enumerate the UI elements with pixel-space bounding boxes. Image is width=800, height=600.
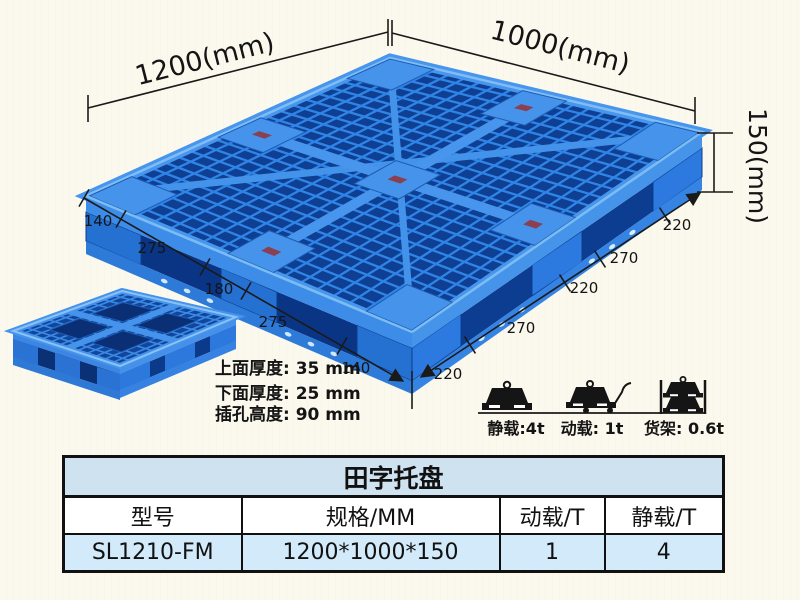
spec-table-title: 田字托盘	[64, 457, 724, 497]
dim-width-label: 1000(mm)	[487, 15, 633, 80]
cell-spec: 1200*1000*150	[242, 534, 500, 572]
rack-load-label: 货架: 0.6t	[644, 419, 724, 438]
rack-load-icon	[661, 377, 705, 414]
static-load-icon	[482, 382, 532, 410]
small-pallet-illustration	[13, 291, 236, 400]
header-spec: 规格/MM	[242, 497, 500, 535]
note-slot-height: 插孔高度: 90 mm	[215, 404, 361, 425]
dim-right-4: 270	[610, 249, 639, 267]
spec-table-data-row: SL1210-FM 1200*1000*150 1 4	[64, 534, 724, 572]
spec-table: 田字托盘 型号 规格/MM 动载/T 静载/T SL1210-FM 1200*1…	[62, 455, 725, 573]
dynamic-load-label: 动载: 1t	[561, 419, 624, 438]
dim-left-2: 275	[138, 239, 167, 257]
spec-table-header-row: 型号 规格/MM 动载/T 静载/T	[64, 497, 724, 535]
static-load-label: 静载:4t	[487, 419, 545, 438]
note-bottom-thickness: 下面厚度: 25 mm	[215, 383, 361, 404]
note-top-thickness: 上面厚度: 35 mm	[215, 358, 361, 379]
dim-left-3: 180	[205, 280, 234, 298]
cell-dynamic-load: 1	[500, 534, 605, 572]
product-spec-sheet: 1200(mm) 1000(mm) 150(mm) 140 275 180 27…	[0, 0, 800, 600]
header-dynamic-load: 动载/T	[500, 497, 605, 535]
dim-right-3: 220	[570, 279, 599, 297]
dim-height-label: 150(mm)	[743, 108, 772, 224]
dim-right-5: 220	[663, 216, 692, 234]
cell-model: SL1210-FM	[64, 534, 242, 572]
load-capacity-icons: 静载:4t 动载: 1t 货架: 0.6t	[478, 377, 724, 438]
cell-static-load: 4	[605, 534, 724, 572]
header-model: 型号	[64, 497, 242, 535]
header-static-load: 静载/T	[605, 497, 724, 535]
dim-left-4: 275	[259, 313, 288, 331]
spec-table-title-row: 田字托盘	[64, 457, 724, 497]
dim-right-2: 270	[507, 319, 536, 337]
dynamic-load-icon	[566, 381, 631, 414]
dim-right-1: 220	[434, 365, 463, 383]
dim-left-1: 140	[84, 212, 113, 230]
dim-length-label: 1200(mm)	[132, 27, 278, 92]
